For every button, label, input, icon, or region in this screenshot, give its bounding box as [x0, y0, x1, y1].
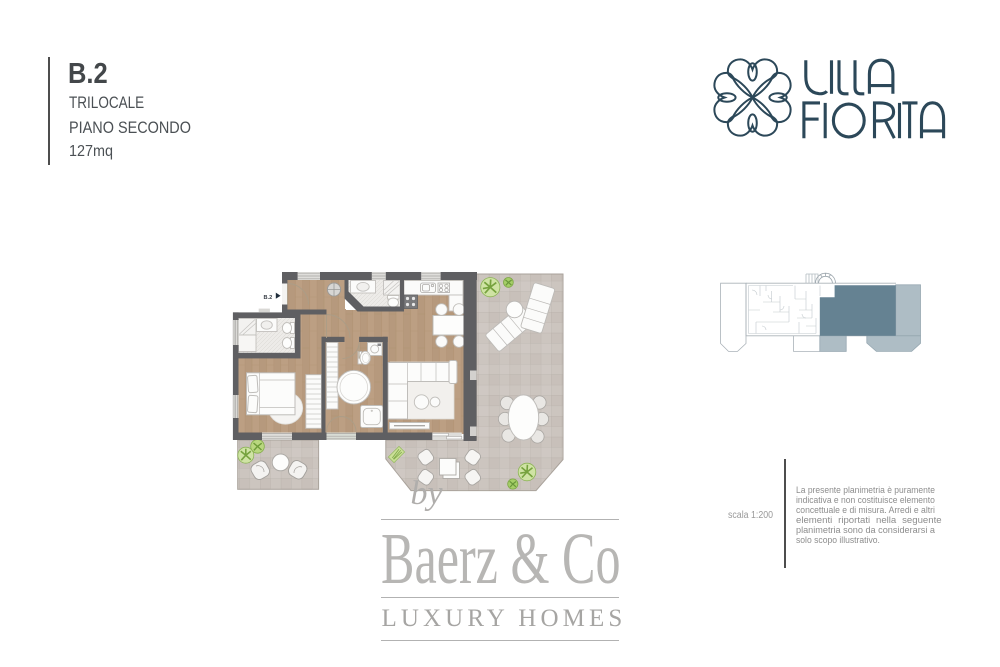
- svg-text:B.2: B.2: [264, 295, 273, 301]
